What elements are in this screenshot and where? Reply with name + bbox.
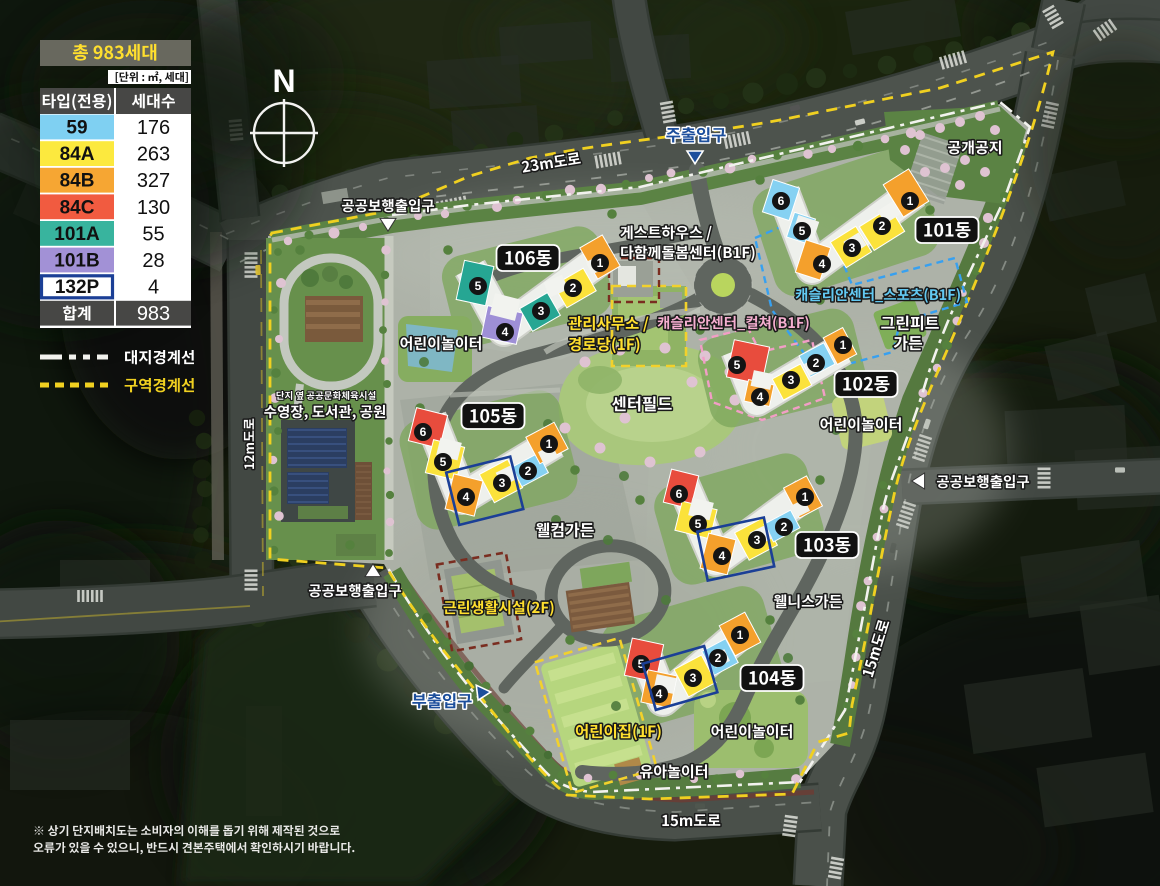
svg-text:6: 6 xyxy=(676,487,683,501)
svg-text:5: 5 xyxy=(695,517,702,531)
svg-text:3: 3 xyxy=(690,671,697,685)
svg-text:1: 1 xyxy=(546,437,553,451)
svg-text:2: 2 xyxy=(570,281,577,295)
svg-text:3: 3 xyxy=(754,533,761,547)
svg-text:5: 5 xyxy=(475,279,482,293)
svg-text:4: 4 xyxy=(148,277,159,299)
svg-text:2: 2 xyxy=(715,651,722,665)
svg-text:1: 1 xyxy=(597,256,604,270)
svg-text:3: 3 xyxy=(499,476,506,490)
svg-text:176: 176 xyxy=(137,117,170,139)
svg-text:3: 3 xyxy=(788,373,795,387)
svg-text:1: 1 xyxy=(907,194,914,208)
svg-text:4: 4 xyxy=(819,257,826,271)
svg-text:5: 5 xyxy=(734,358,741,372)
svg-text:327: 327 xyxy=(137,170,170,192)
svg-text:28: 28 xyxy=(142,250,164,272)
svg-text:263: 263 xyxy=(137,144,170,166)
svg-text:2: 2 xyxy=(813,356,820,370)
svg-text:6: 6 xyxy=(778,194,785,208)
svg-text:101B: 101B xyxy=(54,251,99,272)
svg-text:4: 4 xyxy=(757,390,764,404)
svg-text:2: 2 xyxy=(879,219,886,233)
svg-text:130: 130 xyxy=(137,197,170,219)
svg-text:4: 4 xyxy=(502,325,509,339)
svg-text:55: 55 xyxy=(142,223,164,245)
svg-text:983: 983 xyxy=(137,303,170,325)
svg-text:84C: 84C xyxy=(60,197,95,218)
svg-text:101A: 101A xyxy=(54,224,100,245)
svg-text:3: 3 xyxy=(538,304,545,318)
svg-text:4: 4 xyxy=(656,687,663,701)
svg-text:1: 1 xyxy=(802,490,809,504)
svg-text:5: 5 xyxy=(799,224,806,238)
svg-text:4: 4 xyxy=(463,490,470,504)
svg-text:84A: 84A xyxy=(60,144,95,165)
svg-text:5: 5 xyxy=(440,455,447,469)
svg-text:4: 4 xyxy=(719,549,726,563)
svg-text:2: 2 xyxy=(781,520,788,534)
svg-text:2: 2 xyxy=(525,464,532,478)
svg-text:132P: 132P xyxy=(55,277,100,298)
svg-text:1: 1 xyxy=(840,338,847,352)
svg-text:84B: 84B xyxy=(60,171,95,192)
svg-text:N: N xyxy=(272,63,295,99)
svg-text:59: 59 xyxy=(66,118,87,139)
svg-text:6: 6 xyxy=(420,425,427,439)
svg-text:3: 3 xyxy=(849,241,856,255)
svg-text:1: 1 xyxy=(737,628,744,642)
